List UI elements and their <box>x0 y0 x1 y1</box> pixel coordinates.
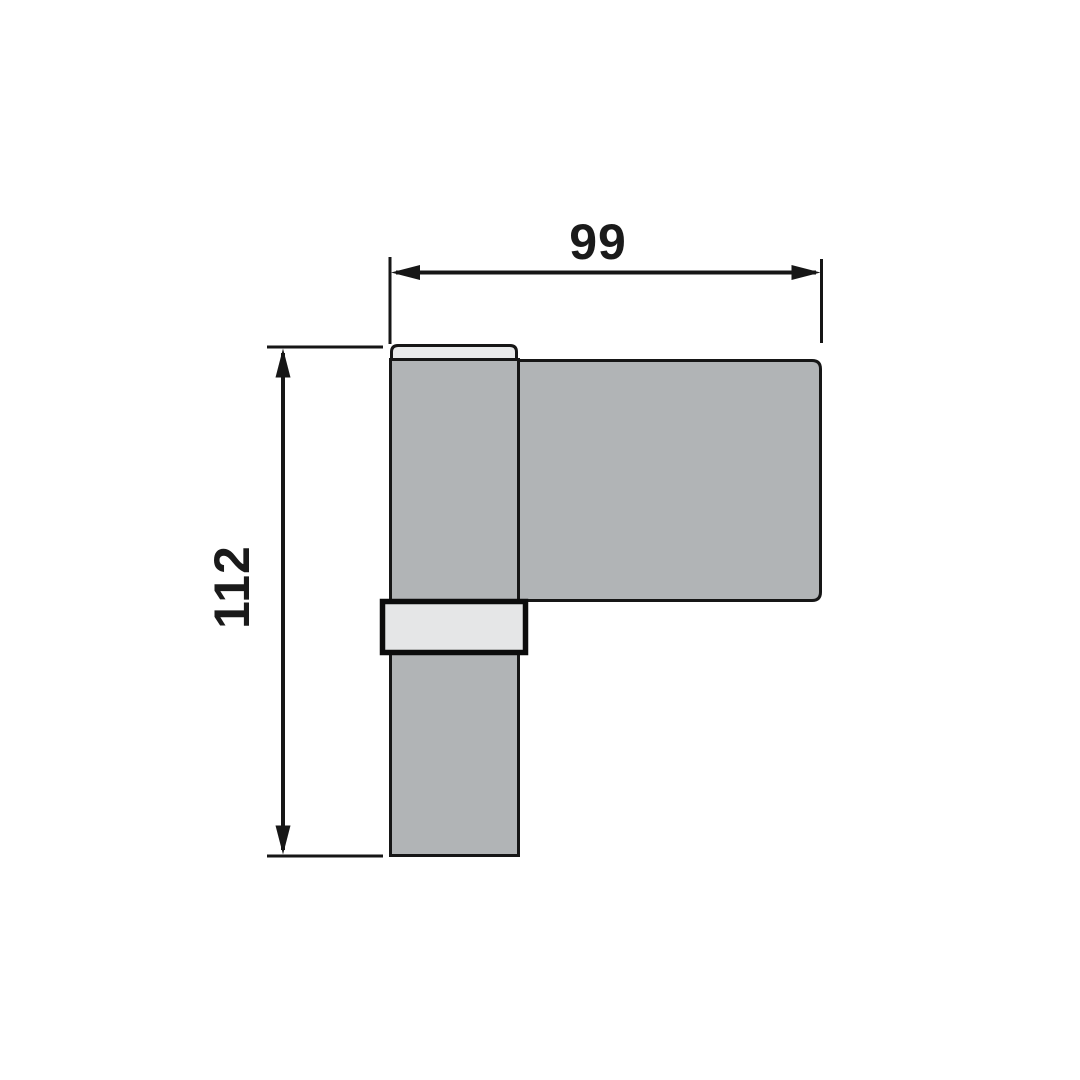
drawing-canvas: 99 112 <box>0 0 1080 1080</box>
hinge-center-sleeve <box>383 602 526 653</box>
hinge-door-leaf-plate <box>519 361 821 601</box>
hinge-dimension-drawing: 99 112 <box>0 0 1080 1080</box>
height-dimension-label: 112 <box>204 545 260 629</box>
width-dimension-label: 99 <box>569 214 627 270</box>
